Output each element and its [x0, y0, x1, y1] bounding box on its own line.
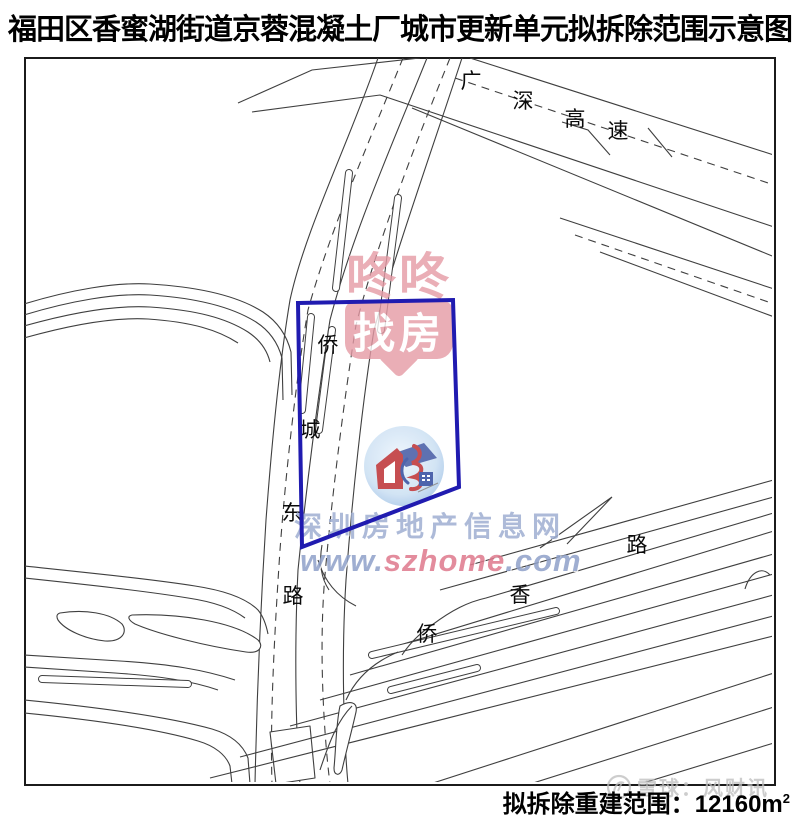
dongdong-shield: 找房 — [345, 301, 453, 359]
watermark-dongdong-seal: 咚咚 找房 — [342, 252, 456, 359]
road-label-qcd-2: 城 — [298, 419, 322, 443]
area-caption-label: 拟拆除重建范围： — [503, 791, 695, 815]
map-frame — [24, 57, 776, 786]
road-label-gs-2: 深 — [511, 90, 535, 114]
road-label-qcd-4: 路 — [281, 585, 305, 609]
road-label-gs-1: 广 — [459, 70, 483, 94]
page-title: 福田区香蜜湖街道京蓉混凝土厂城市更新单元拟拆除范围示意图 — [0, 6, 800, 48]
watermark-szhome: 深圳房地产信息网 www.szhome.com — [294, 505, 582, 579]
road-label-qx-2: 香 — [508, 584, 532, 608]
area-caption: 拟拆除重建范围：12160m2 — [503, 784, 790, 815]
szhome-cn-text: 深圳房地产信息网 — [294, 505, 582, 545]
road-label-gs-4: 速 — [606, 120, 630, 144]
road-label-gs-3: 高 — [563, 108, 587, 132]
road-label-qx-3: 路 — [625, 534, 649, 558]
szhome-url-text: www.szhome.com — [300, 543, 582, 579]
dongdong-top-text: 咚咚 — [342, 252, 456, 303]
road-label-qcd-1: 侨 — [316, 334, 340, 358]
road-label-qx-1: 侨 — [415, 623, 439, 647]
schematic-image: 福田区香蜜湖街道京蓉混凝土厂城市更新单元拟拆除范围示意图 — [0, 0, 800, 815]
area-caption-value: 12160m — [695, 791, 783, 815]
area-caption-sup: 2 — [783, 791, 790, 806]
dongdong-bottom-text: 找房 — [353, 300, 445, 361]
